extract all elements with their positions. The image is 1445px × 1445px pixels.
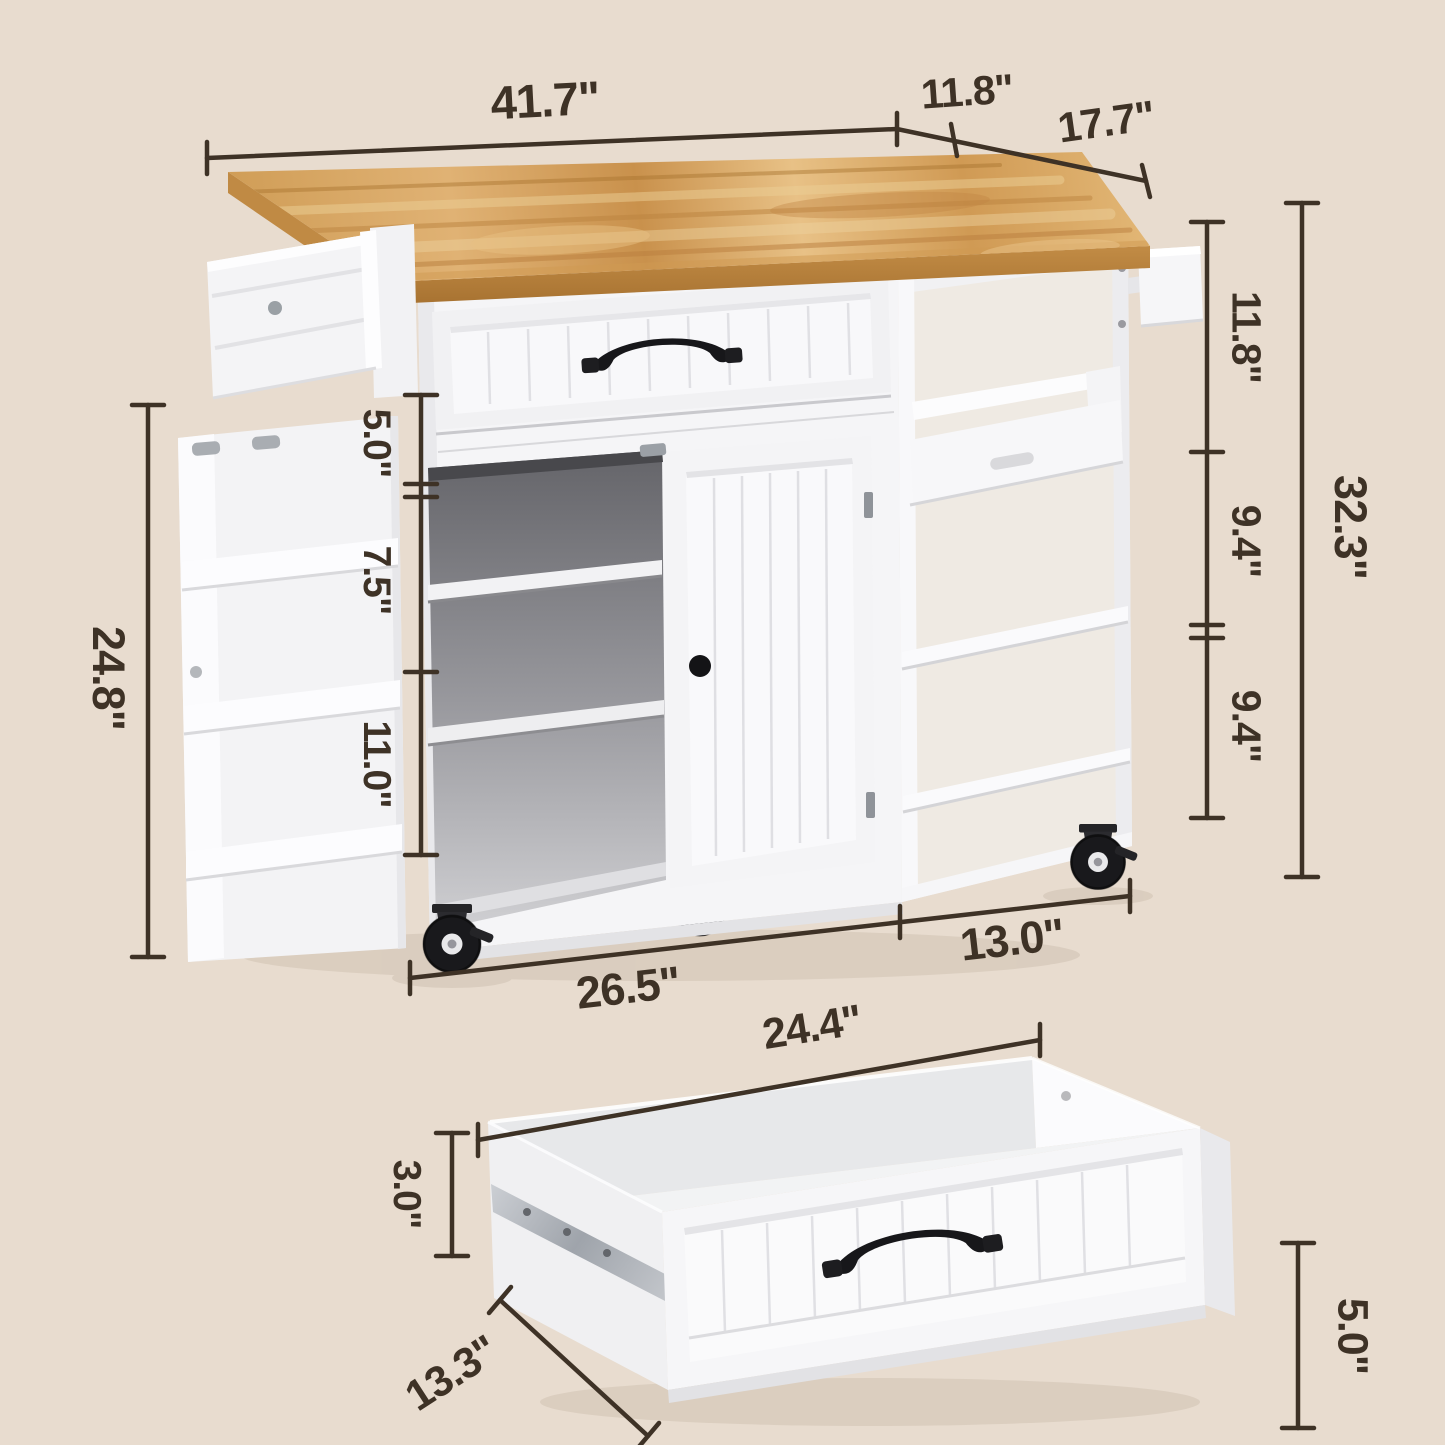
dim-left-bottom-section: 11.0" (354, 720, 398, 807)
product-dimensions-diagram: 41.7" 11.8" 17.7" 11.8" 9.4" 9.4" 32.3" … (0, 0, 1445, 1445)
door-hinge-lower (866, 792, 875, 818)
cart-door (640, 436, 875, 888)
door-hinge-upper (864, 492, 873, 518)
dim-right-total-height: 32.3" (1324, 475, 1376, 579)
cart-open-compartment (428, 450, 666, 930)
left-side-rack (207, 224, 418, 398)
door-hinge-b (252, 435, 281, 450)
drawer-illustration (488, 1058, 1235, 1403)
dim-drawer-back-height: 3.0" (384, 1160, 428, 1229)
door-top-hinge (640, 443, 667, 457)
rack-screw (268, 301, 282, 315)
door-knob (689, 655, 711, 677)
door-hinge-a (192, 441, 221, 456)
dim-left-top-section: 5.0" (354, 409, 398, 478)
cart-side-shelves (898, 228, 1132, 902)
left-open-door (178, 416, 406, 962)
dim-right-middle: 9.4" (1223, 505, 1270, 577)
dim-left-middle-section: 7.5" (354, 546, 398, 615)
dim-left-height: 24.8" (82, 626, 134, 730)
door-back-knob (190, 666, 202, 678)
dim-drop-leaf-depth: 11.8" (919, 65, 1014, 118)
dim-top-width: 41.7" (489, 70, 600, 131)
dim-right-upper: 11.8" (1223, 291, 1270, 383)
dim-drawer-front-height: 5.0" (1328, 1298, 1377, 1374)
dim-right-lower: 9.4" (1223, 690, 1270, 762)
